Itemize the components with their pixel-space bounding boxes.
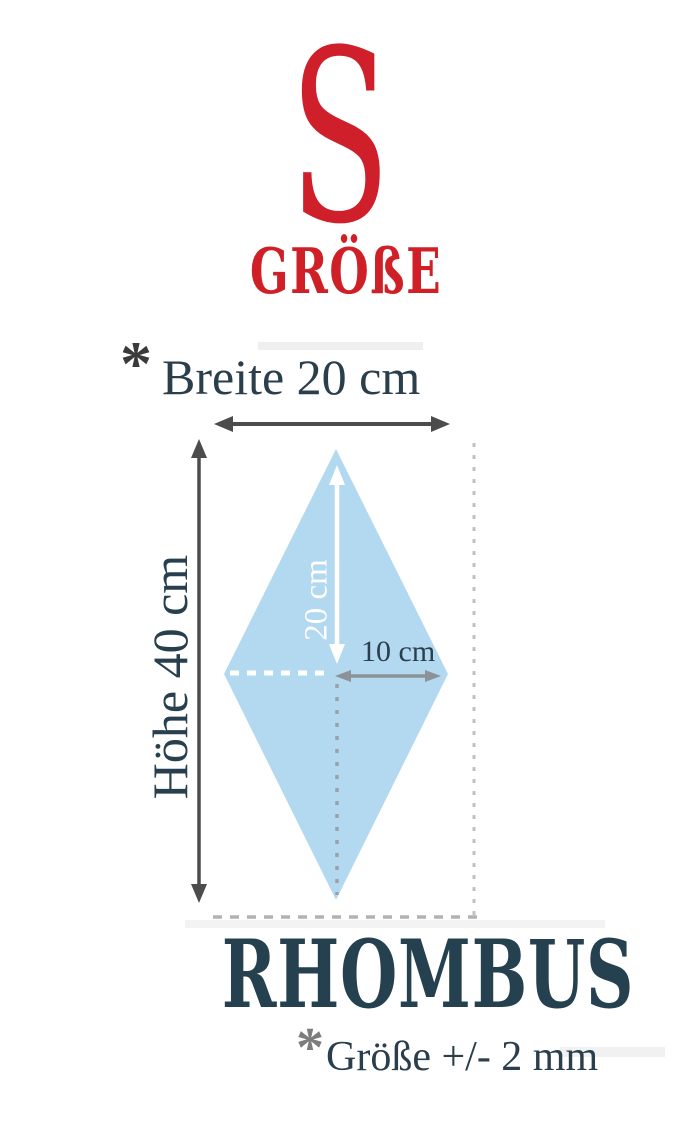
shape-title: RHOMBUS bbox=[222, 928, 634, 1022]
height-label: Höhe 40 cm bbox=[145, 555, 195, 799]
size-chart-page: S GRÖßE * Breite 20 cm bbox=[0, 0, 680, 1135]
half-width-label: 10 cm bbox=[361, 637, 435, 667]
half-height-label: 20 cm bbox=[301, 559, 334, 641]
width-arrow bbox=[214, 416, 450, 432]
watermark-ghost bbox=[258, 342, 423, 350]
tolerance-note: Größe +/- 2 mm bbox=[326, 1036, 598, 1078]
footnote-asterisk-bottom: * bbox=[296, 1020, 324, 1076]
